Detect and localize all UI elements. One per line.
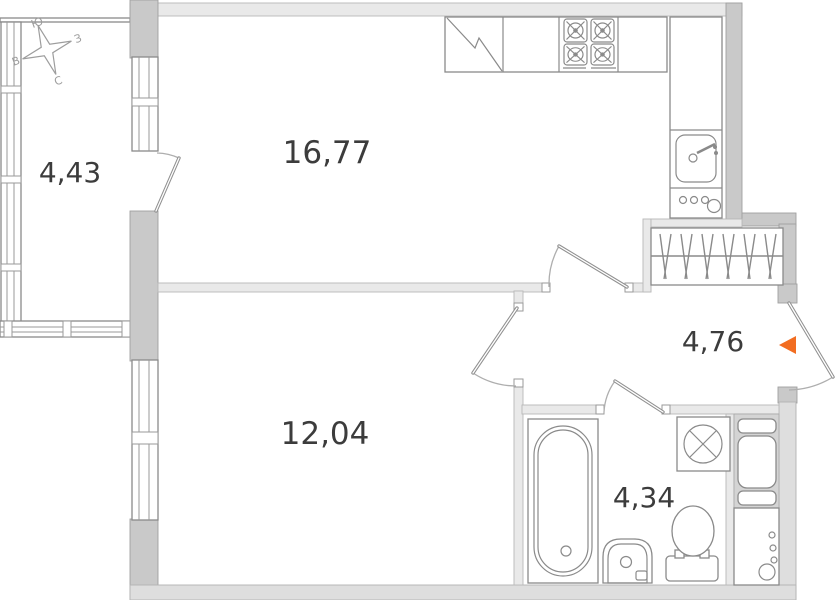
kitchen-fixtures <box>445 17 722 218</box>
wall-right-upper <box>726 3 742 219</box>
wall-bottom <box>130 585 796 600</box>
washing-machine-icon <box>677 417 730 471</box>
living-room-window <box>132 57 158 151</box>
washbasin-icon <box>603 539 652 583</box>
kitchen-counter-top <box>445 17 667 72</box>
kitchen-living-area-label: 16,77 <box>283 135 372 171</box>
wall-right-lower <box>779 402 796 600</box>
balcony-area-label: 4,43 <box>39 156 101 189</box>
wall-left-middle <box>130 211 158 361</box>
entrance-jamb-top <box>778 284 797 303</box>
wall-top <box>130 3 742 16</box>
wardrobe <box>651 228 783 285</box>
partition-living-bedroom <box>158 283 550 292</box>
partition-bathroom-top <box>522 405 596 414</box>
floor-plan-page: Ю З С В <box>0 0 835 600</box>
wall-left-upper <box>130 0 158 58</box>
kitchen-door <box>549 246 627 287</box>
compass-letter-north: С <box>52 73 64 88</box>
hallway-area-label: 4,76 <box>682 325 744 358</box>
entrance-arrow-icon <box>779 336 796 354</box>
compass-letter-west: З <box>72 31 83 46</box>
partition-niche-top <box>651 219 742 227</box>
balcony-glazing-bottom <box>0 321 130 337</box>
bedroom-door <box>473 308 517 386</box>
bathroom-area-label: 4,34 <box>613 481 675 514</box>
bathroom-door-jamb-left <box>596 405 604 414</box>
bathtub-icon <box>528 419 598 583</box>
partition-bedroom-hall <box>514 291 523 303</box>
floor-plan: Ю З С В <box>0 0 835 600</box>
balcony-door <box>156 153 179 211</box>
bedroom-window <box>132 360 158 520</box>
bedroom-area-label: 12,04 <box>281 416 370 452</box>
bathroom-door <box>604 381 663 412</box>
compass-star <box>14 17 81 84</box>
partition-living-hall <box>643 219 651 292</box>
riser-cell <box>734 508 779 585</box>
balcony-glazing-left <box>1 22 21 336</box>
compass-letter-south: Ю <box>29 15 45 31</box>
toilet-icon <box>666 506 718 581</box>
utility-shaft <box>734 414 779 585</box>
